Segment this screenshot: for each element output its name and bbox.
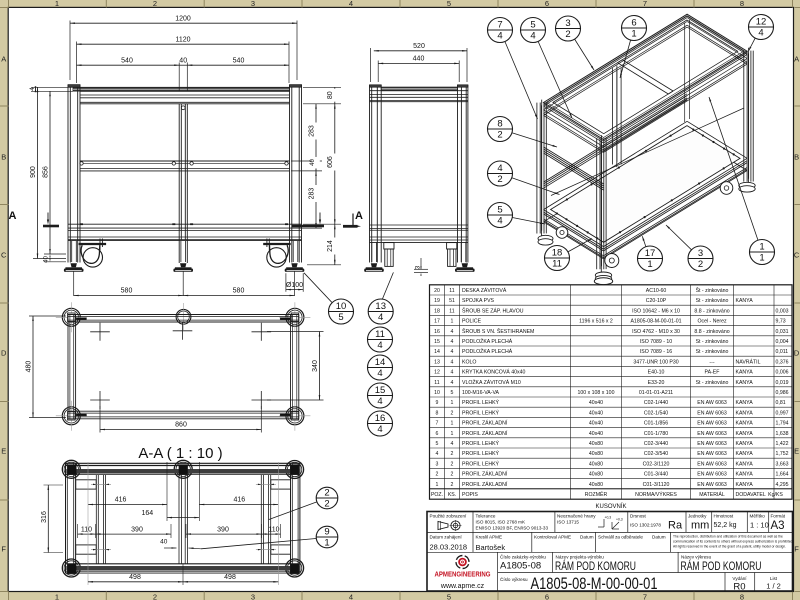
svg-text:390: 390	[217, 526, 229, 533]
svg-text:4: 4	[451, 329, 454, 335]
svg-text:4: 4	[497, 163, 502, 174]
svg-text:40: 40	[160, 538, 168, 545]
svg-text:C: C	[1, 251, 7, 260]
svg-text:0,006: 0,006	[776, 370, 789, 376]
svg-text:Schválil za odběratele: Schválil za odběratele	[598, 535, 643, 540]
svg-text:0,031: 0,031	[776, 329, 789, 335]
svg-text:2: 2	[451, 451, 454, 457]
svg-text:5: 5	[530, 20, 535, 31]
svg-text:MATERIÁL: MATERIÁL	[699, 491, 725, 498]
svg-text:3: 3	[436, 461, 439, 467]
svg-text:4: 4	[451, 359, 454, 365]
svg-text:E40-10: E40-10	[648, 370, 665, 376]
svg-text:4: 4	[436, 451, 439, 457]
svg-text:40x80: 40x80	[589, 482, 603, 488]
svg-text:8.8 - zinkováno: 8.8 - zinkováno	[694, 308, 729, 314]
svg-text:Ra: Ra	[668, 520, 683, 532]
svg-text:2: 2	[565, 29, 570, 40]
svg-text:EN AW 6063: EN AW 6063	[697, 421, 727, 427]
svg-text:KANYA: KANYA	[736, 431, 754, 437]
svg-text:C02-3/440: C02-3/440	[644, 441, 668, 447]
svg-text:APMENGINEERING: APMENGINEERING	[435, 570, 491, 579]
svg-text:DESKA ZÁVITOVÁ: DESKA ZÁVITOVÁ	[462, 287, 507, 294]
svg-text:19: 19	[434, 298, 440, 304]
svg-text:3: 3	[415, 265, 422, 269]
svg-text:1: 1	[631, 29, 636, 40]
svg-text:B: B	[1, 153, 6, 162]
svg-text:4: 4	[758, 28, 763, 39]
svg-text:440: 440	[413, 55, 425, 62]
svg-text:40x40: 40x40	[589, 421, 603, 427]
svg-text:860: 860	[175, 422, 187, 429]
svg-text:NAVRÁTIL: NAVRÁTIL	[736, 358, 761, 365]
svg-text:St - zinkováno: St - zinkováno	[696, 380, 729, 386]
svg-text:Číslo výkresu: Číslo výkresu	[500, 576, 528, 582]
svg-text:9,73: 9,73	[776, 319, 786, 325]
svg-text:Hmotnost: Hmotnost	[714, 514, 734, 519]
svg-text:2: 2	[451, 482, 454, 488]
svg-text:3: 3	[251, 0, 255, 8]
svg-text:1: 1	[647, 259, 652, 270]
svg-text:10: 10	[434, 390, 440, 396]
svg-text:F: F	[1, 545, 6, 554]
svg-text:1,752: 1,752	[776, 451, 789, 457]
svg-text:1200: 1200	[175, 16, 191, 23]
svg-text:6: 6	[545, 0, 549, 8]
svg-text:0,004: 0,004	[776, 339, 789, 345]
svg-text:900: 900	[30, 166, 37, 178]
svg-text:ISO 7089 - 16: ISO 7089 - 16	[640, 349, 672, 355]
svg-text:St - zinkováno: St - zinkováno	[696, 349, 729, 355]
svg-text:7: 7	[497, 20, 502, 31]
svg-text:KANYA: KANYA	[736, 370, 754, 376]
svg-text:5: 5	[436, 441, 439, 447]
svg-text:1,638: 1,638	[776, 431, 789, 437]
svg-text:KANYA: KANYA	[736, 421, 754, 427]
svg-text:2: 2	[153, 592, 157, 600]
svg-text:5: 5	[497, 205, 502, 216]
svg-text:Tolerance: Tolerance	[476, 514, 496, 519]
svg-text:POPIS: POPIS	[462, 492, 478, 498]
svg-text:283: 283	[308, 125, 315, 137]
svg-text:SPOJKA PVS: SPOJKA PVS	[462, 298, 495, 304]
svg-text:520: 520	[413, 43, 425, 50]
svg-text:ISO 13715: ISO 13715	[557, 520, 579, 525]
svg-text:Drsnost: Drsnost	[630, 514, 647, 519]
svg-text:0,011: 0,011	[776, 349, 789, 355]
svg-text:EN AW 6063: EN AW 6063	[697, 451, 727, 457]
svg-text:498: 498	[129, 574, 141, 581]
svg-text:7: 7	[436, 421, 439, 427]
svg-text:A: A	[355, 210, 363, 222]
svg-text:Neoznačené hrany: Neoznačené hrany	[557, 514, 596, 519]
svg-text:All rights reserved in the eve: All rights reserved in the event of the …	[673, 545, 786, 549]
svg-text:16: 16	[434, 329, 440, 335]
svg-text:NORMA/VÝKRES: NORMA/VÝKRES	[635, 491, 677, 498]
svg-text:4: 4	[377, 424, 382, 435]
svg-text:7: 7	[643, 592, 647, 600]
svg-text:283: 283	[308, 188, 315, 200]
svg-text:E33-20: E33-20	[648, 380, 665, 386]
svg-text:4: 4	[497, 216, 502, 227]
svg-text:8: 8	[497, 119, 502, 130]
svg-text:6: 6	[631, 18, 636, 29]
svg-text:1: 1	[451, 431, 454, 437]
svg-text:14: 14	[375, 357, 386, 368]
svg-text:4: 4	[378, 312, 383, 323]
svg-text:ISO 1302:1978: ISO 1302:1978	[630, 523, 661, 528]
svg-text:18: 18	[552, 248, 563, 259]
svg-text:+0,3: +0,3	[616, 518, 623, 522]
svg-text:40: 40	[310, 159, 316, 166]
svg-text:ISO 4762 - M10 x 30: ISO 4762 - M10 x 30	[632, 329, 680, 335]
svg-text:4: 4	[377, 340, 382, 351]
svg-text:Datum zahájení: Datum zahájení	[430, 535, 463, 540]
svg-text:6: 6	[545, 592, 549, 600]
svg-text:R0: R0	[733, 582, 745, 593]
svg-text:40x80: 40x80	[589, 451, 603, 457]
svg-text:Kontroloval APME: Kontroloval APME	[534, 535, 571, 540]
svg-text:RÁM POD KOMORU: RÁM POD KOMORU	[555, 558, 636, 573]
svg-text:18: 18	[434, 308, 440, 314]
svg-text:PROFIL LEHKÝ: PROFIL LEHKÝ	[462, 440, 500, 447]
svg-text:C01-3/440: C01-3/440	[644, 472, 668, 478]
svg-text:F: F	[794, 545, 799, 554]
svg-text:A3: A3	[771, 520, 785, 532]
svg-text:POLICE: POLICE	[462, 319, 482, 325]
svg-text:D: D	[794, 349, 800, 358]
svg-text:40x40: 40x40	[589, 431, 603, 437]
svg-text:11: 11	[552, 259, 562, 270]
svg-text:8: 8	[740, 0, 744, 8]
svg-text:A1805-08-M-00-00-01: A1805-08-M-00-00-01	[531, 575, 658, 593]
svg-text:2: 2	[153, 0, 157, 8]
svg-text:PODLOŽKA PLECHÁ: PODLOŽKA PLECHÁ	[462, 347, 513, 355]
svg-text:498: 498	[224, 574, 236, 581]
svg-text:4: 4	[377, 396, 382, 407]
svg-text:Bartošek: Bartošek	[476, 543, 506, 552]
svg-text:PA-EF: PA-EF	[705, 370, 720, 376]
svg-text:KS.: KS.	[448, 492, 456, 498]
svg-text:EN/ISO 13920 BF, EN/ISO 9013-3: EN/ISO 13920 BF, EN/ISO 9013-33	[476, 526, 549, 531]
svg-text:KRYTKA KONCOVÁ 40x40: KRYTKA KONCOVÁ 40x40	[462, 369, 525, 376]
svg-text:0,003: 0,003	[776, 308, 789, 314]
svg-text:KANYA: KANYA	[736, 410, 754, 416]
svg-text:2: 2	[436, 472, 439, 478]
svg-text:PROFIL ZÁKLADNÍ: PROFIL ZÁKLADNÍ	[462, 430, 508, 437]
svg-text:6: 6	[436, 431, 439, 437]
svg-text:C02-3/1120: C02-3/1120	[643, 461, 670, 467]
svg-text:12: 12	[434, 370, 440, 376]
svg-text:8: 8	[436, 410, 439, 416]
svg-text:11: 11	[449, 288, 454, 294]
svg-text:3,663: 3,663	[776, 461, 789, 467]
svg-text:1: 1	[759, 242, 764, 253]
svg-text:5: 5	[447, 0, 451, 8]
svg-text:St - zinkováno: St - zinkováno	[696, 339, 729, 345]
svg-text:KANYA: KANYA	[736, 441, 754, 447]
svg-text:540: 540	[233, 57, 245, 64]
svg-text:AC10-60: AC10-60	[646, 288, 667, 294]
svg-text:5: 5	[451, 390, 454, 396]
svg-text:1196 x 516 x 2: 1196 x 516 x 2	[579, 319, 613, 325]
svg-text:C20-10P: C20-10P	[646, 298, 667, 304]
svg-text:A: A	[794, 55, 799, 64]
svg-text:8.8 - zinkováno: 8.8 - zinkováno	[694, 329, 729, 335]
svg-text:1,664: 1,664	[776, 472, 789, 478]
svg-text:KUSOVNÍK: KUSOVNÍK	[595, 503, 626, 510]
svg-text:1,794: 1,794	[776, 421, 789, 427]
svg-text:3: 3	[698, 248, 703, 259]
svg-text:1 / 2: 1 / 2	[766, 582, 781, 591]
svg-text:Ø100: Ø100	[286, 282, 303, 289]
svg-text:3477-UNR 100 P30: 3477-UNR 100 P30	[633, 359, 678, 365]
svg-text:0,997: 0,997	[776, 410, 789, 416]
svg-text:A1805-08: A1805-08	[500, 561, 541, 572]
svg-text:1: 1	[55, 0, 59, 8]
svg-text:KANYA: KANYA	[736, 451, 754, 457]
svg-text:Vydání: Vydání	[732, 576, 747, 581]
svg-text:2: 2	[451, 461, 454, 467]
svg-text:KANYA: KANYA	[736, 461, 754, 467]
svg-text:40x80: 40x80	[589, 461, 603, 467]
svg-text:40x40: 40x40	[589, 400, 603, 406]
svg-text:14: 14	[434, 349, 440, 355]
svg-text:4: 4	[451, 441, 454, 447]
svg-text:DODAVATEL: DODAVATEL	[736, 492, 766, 498]
svg-text:KANYA: KANYA	[736, 400, 754, 406]
svg-text:POZ.: POZ.	[431, 492, 443, 498]
svg-text:B: B	[794, 153, 799, 162]
svg-text:01-01-01-A211: 01-01-01-A211	[639, 390, 673, 396]
svg-text:PROFIL LEHKÝ: PROFIL LEHKÝ	[462, 460, 500, 467]
svg-text:ISO 10642 - M6 x 10: ISO 10642 - M6 x 10	[632, 308, 680, 314]
svg-text:D: D	[1, 349, 7, 358]
svg-text:100 x 108 x 100: 100 x 108 x 100	[578, 390, 615, 396]
svg-text:2: 2	[324, 499, 329, 510]
svg-text:1120: 1120	[175, 37, 190, 44]
svg-text:Datum: Datum	[580, 535, 594, 540]
svg-text:1: 1	[451, 421, 454, 427]
svg-text:4: 4	[530, 31, 535, 42]
svg-text:416: 416	[233, 497, 245, 504]
svg-text:4: 4	[451, 349, 454, 355]
svg-text:C01-1/780: C01-1/780	[644, 431, 668, 437]
svg-text:390: 390	[131, 526, 143, 533]
svg-text:2: 2	[497, 130, 502, 141]
svg-text:1,422: 1,422	[776, 441, 789, 447]
svg-text:Ocel - Nerez: Ocel - Nerez	[697, 319, 727, 325]
svg-text:40: 40	[179, 57, 187, 64]
svg-text:KANYA: KANYA	[736, 380, 754, 386]
svg-text:0,376: 0,376	[776, 359, 789, 365]
svg-text:E: E	[794, 447, 799, 456]
svg-text:11: 11	[434, 380, 439, 386]
svg-text:316: 316	[41, 511, 48, 523]
svg-text:80: 80	[327, 91, 334, 99]
svg-text:0,81: 0,81	[776, 400, 786, 406]
svg-text:40x80: 40x80	[589, 472, 603, 478]
svg-text:mm: mm	[691, 520, 709, 532]
svg-text:580: 580	[233, 288, 245, 295]
svg-text:PROFIL ZÁKLADNÍ: PROFIL ZÁKLADNÍ	[462, 481, 508, 488]
svg-text:1: 1	[759, 253, 764, 264]
svg-text:15: 15	[375, 385, 386, 396]
svg-text:Št - zinkováno: Št - zinkováno	[696, 287, 729, 294]
svg-text:5: 5	[447, 592, 451, 600]
svg-text:1: 1	[451, 319, 454, 325]
svg-text:0,019: 0,019	[776, 380, 789, 386]
svg-text:416: 416	[115, 497, 127, 504]
svg-text:PROFIL LEHKÝ: PROFIL LEHKÝ	[462, 399, 500, 406]
svg-text:13: 13	[434, 359, 440, 365]
svg-text:RÁM POD KOMORU: RÁM POD KOMORU	[681, 558, 762, 573]
svg-text:11: 11	[375, 329, 385, 340]
svg-text:3: 3	[565, 18, 570, 29]
svg-text:A-A ( 1 : 10 ): A-A ( 1 : 10 )	[138, 445, 222, 462]
svg-text:540: 540	[121, 57, 133, 64]
svg-text:5: 5	[338, 312, 343, 323]
svg-text:1 : 10: 1 : 10	[750, 521, 769, 530]
svg-text:C02-1/440: C02-1/440	[644, 400, 668, 406]
svg-text:EN AW 6063: EN AW 6063	[697, 431, 727, 437]
svg-text:40x80: 40x80	[589, 441, 603, 447]
svg-text:110: 110	[268, 526, 279, 533]
svg-text:214: 214	[327, 240, 334, 252]
svg-text:Kreslil APME: Kreslil APME	[476, 535, 503, 540]
svg-text:2: 2	[451, 472, 454, 478]
svg-text:16: 16	[375, 413, 386, 424]
svg-text:Měřítko: Měřítko	[750, 514, 766, 519]
svg-text:1: 1	[324, 538, 329, 549]
svg-text:13: 13	[375, 301, 386, 312]
svg-text:9: 9	[436, 400, 439, 406]
svg-text:E: E	[1, 447, 6, 456]
svg-text:2: 2	[497, 174, 502, 185]
svg-text:28.03.2018: 28.03.2018	[430, 543, 468, 552]
svg-text:110: 110	[81, 526, 92, 533]
svg-text:A1805-08-M-00-01-01: A1805-08-M-00-01-01	[630, 319, 681, 325]
svg-text:40: 40	[44, 256, 50, 263]
svg-text:0,986: 0,986	[776, 390, 789, 396]
svg-text:VLOŽKA ZÁVITOVÁ M10: VLOŽKA ZÁVITOVÁ M10	[462, 378, 521, 386]
svg-text:580: 580	[121, 288, 133, 295]
svg-text:KANYA: KANYA	[736, 472, 754, 478]
svg-text:4: 4	[451, 339, 454, 345]
svg-text:Formát: Formát	[771, 514, 786, 519]
svg-text:100-M16-VA-VA: 100-M16-VA-VA	[462, 390, 500, 396]
svg-text:1: 1	[55, 592, 59, 600]
svg-text:40x40: 40x40	[589, 410, 603, 416]
svg-text:PROFIL ZÁKLADNÍ: PROFIL ZÁKLADNÍ	[462, 420, 508, 427]
svg-text:10: 10	[336, 301, 347, 312]
svg-text:Použité zobrazení: Použité zobrazení	[430, 514, 467, 519]
svg-text:11: 11	[449, 308, 454, 314]
svg-text:Jednotky: Jednotky	[688, 514, 707, 519]
svg-text:communication of its contents: communication of its contents to others …	[673, 540, 793, 544]
svg-text:164: 164	[141, 510, 153, 517]
svg-text:9: 9	[324, 527, 329, 538]
svg-text:2: 2	[324, 488, 329, 499]
svg-text:C: C	[794, 251, 800, 260]
svg-text:4: 4	[451, 380, 454, 386]
svg-text:Číslo zakázky-výrobku: Číslo zakázky-výrobku	[500, 554, 546, 560]
svg-text:PODLOŽKA PLECHÁ: PODLOŽKA PLECHÁ	[462, 337, 513, 345]
svg-text:KANYA: KANYA	[736, 298, 754, 304]
svg-text:www.apme.cz: www.apme.cz	[440, 583, 485, 590]
svg-text:PROFIL ZÁKLADNÍ: PROFIL ZÁKLADNÍ	[462, 471, 508, 478]
svg-text:606: 606	[327, 156, 334, 168]
svg-text:The reproduction, distribution: The reproduction, distribution and utili…	[673, 535, 783, 539]
svg-text:C01-3/1120: C01-3/1120	[643, 482, 670, 488]
svg-text:12: 12	[756, 17, 767, 28]
svg-text:C02-1/540: C02-1/540	[644, 410, 668, 416]
svg-text:4,295: 4,295	[776, 482, 789, 488]
svg-text:ŠROUB SE ZÁP. HLAVOU: ŠROUB SE ZÁP. HLAVOU	[462, 307, 524, 314]
svg-text:480: 480	[26, 361, 33, 373]
svg-text:A: A	[1, 55, 6, 64]
svg-text:C02-3/540: C02-3/540	[644, 451, 668, 457]
svg-text:8: 8	[740, 592, 744, 600]
svg-text:+0,3: +0,3	[605, 516, 612, 520]
svg-text:PROFIL LEHKÝ: PROFIL LEHKÝ	[462, 450, 500, 457]
svg-text:4: 4	[349, 0, 353, 8]
svg-text:2: 2	[698, 259, 703, 270]
svg-text:856: 856	[43, 166, 50, 178]
svg-text:List: List	[770, 576, 778, 581]
svg-text:EN AW 6063: EN AW 6063	[697, 472, 727, 478]
svg-text:C01-1/856: C01-1/856	[644, 421, 668, 427]
svg-text:PROFIL LEHKÝ: PROFIL LEHKÝ	[462, 409, 500, 416]
svg-text:4: 4	[497, 31, 502, 42]
svg-text:KOLO: KOLO	[462, 359, 476, 365]
svg-text:EN AW 6063: EN AW 6063	[697, 410, 727, 416]
svg-text:20: 20	[434, 288, 440, 294]
svg-text:EN AW 6063: EN AW 6063	[697, 482, 727, 488]
svg-text:17: 17	[434, 319, 440, 325]
svg-text:EN AW 6063: EN AW 6063	[697, 461, 727, 467]
svg-text:1: 1	[436, 482, 439, 488]
svg-text:4: 4	[451, 370, 454, 376]
svg-text:ISO 8015, ISO 2768 mK: ISO 8015, ISO 2768 mK	[476, 520, 526, 525]
svg-text:51: 51	[449, 298, 455, 304]
svg-text:4: 4	[349, 592, 353, 600]
svg-text:4: 4	[377, 368, 382, 379]
svg-text:ISO 7089 - 10: ISO 7089 - 10	[640, 339, 672, 345]
svg-text:A: A	[9, 210, 17, 222]
svg-text:St - zinkováno: St - zinkováno	[696, 298, 729, 304]
svg-text:ŠROUB S VN. ŠESTIHRANEM: ŠROUB S VN. ŠESTIHRANEM	[462, 328, 534, 335]
svg-text:Kg/KS: Kg/KS	[768, 492, 783, 498]
svg-text:52,2 kg: 52,2 kg	[714, 522, 737, 529]
svg-text:KANYA: KANYA	[736, 482, 754, 488]
svg-text:Datum: Datum	[652, 535, 666, 540]
svg-text:2: 2	[451, 410, 454, 416]
svg-text:1: 1	[451, 400, 454, 406]
svg-text:15: 15	[434, 339, 440, 345]
svg-text:ROZMĚR: ROZMĚR	[585, 490, 608, 498]
svg-text:EN AW 6063: EN AW 6063	[697, 441, 727, 447]
svg-text:---: ---	[709, 359, 714, 365]
svg-text:7: 7	[643, 0, 647, 8]
svg-text:17: 17	[645, 248, 656, 259]
svg-text:3: 3	[251, 592, 255, 600]
svg-text:EN AW 6063: EN AW 6063	[697, 400, 727, 406]
svg-text:340: 340	[312, 360, 319, 372]
